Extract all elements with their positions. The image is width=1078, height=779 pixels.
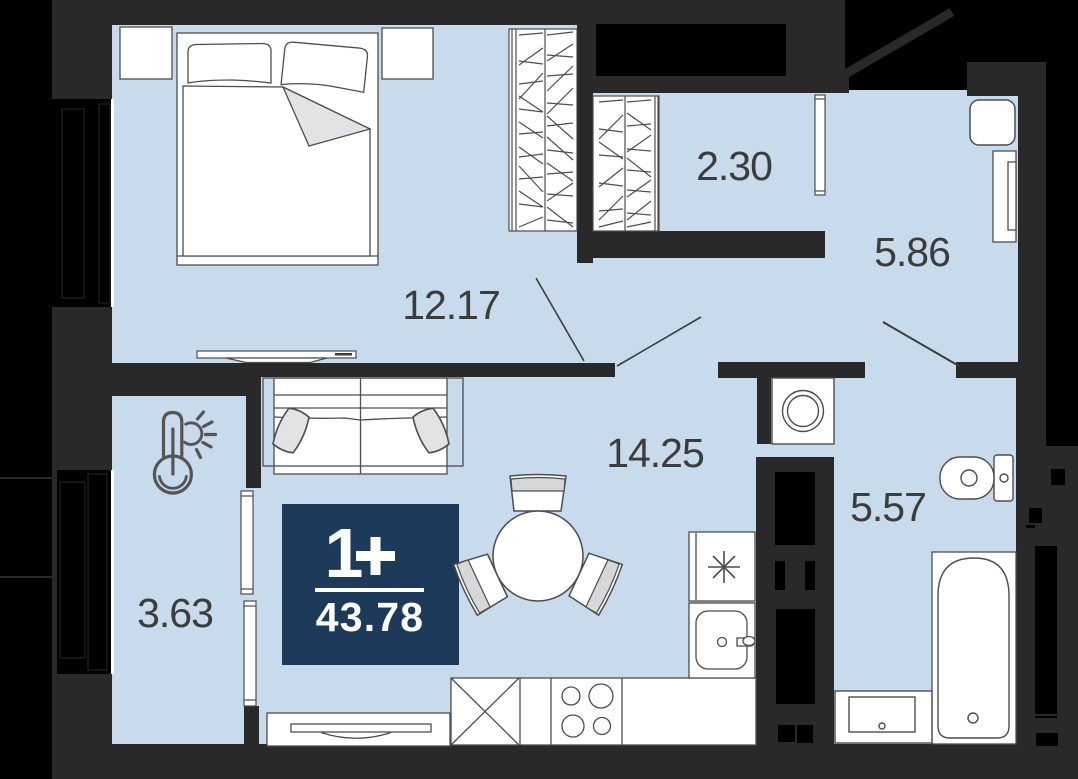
svg-text:5.86: 5.86 bbox=[874, 229, 950, 275]
svg-text:12.17: 12.17 bbox=[402, 282, 500, 328]
svg-text:14.25: 14.25 bbox=[606, 430, 704, 476]
svg-text:3.63: 3.63 bbox=[137, 590, 213, 636]
svg-text:5.57: 5.57 bbox=[850, 484, 926, 530]
svg-text:2.30: 2.30 bbox=[696, 143, 772, 189]
svg-text:43.78: 43.78 bbox=[316, 594, 425, 640]
